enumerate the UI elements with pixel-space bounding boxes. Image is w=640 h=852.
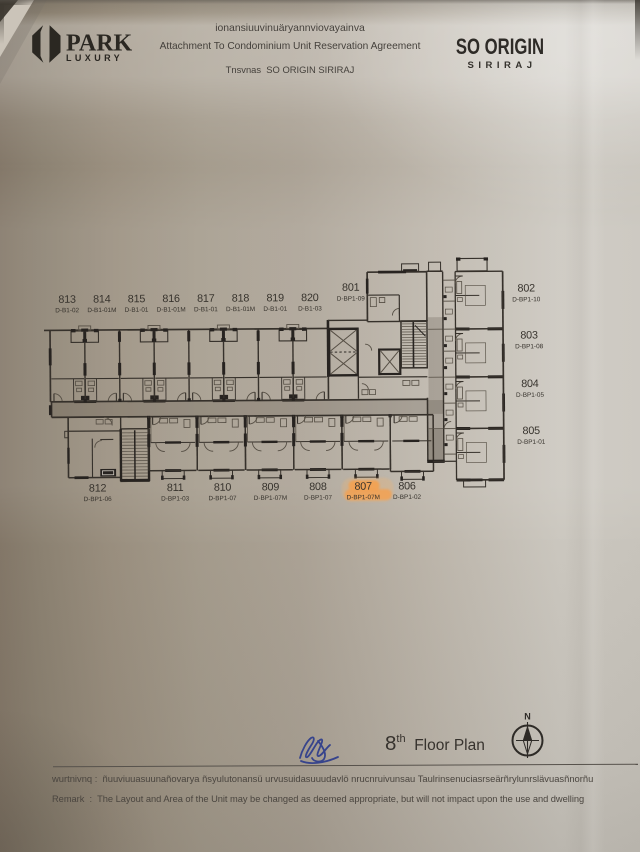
- svg-text:801: 801: [342, 282, 360, 294]
- svg-text:817: 817: [197, 293, 215, 305]
- svg-text:811: 811: [167, 482, 184, 494]
- svg-text:D-BP1-09: D-BP1-09: [337, 295, 366, 302]
- svg-text:D-BP1-06: D-BP1-06: [84, 496, 113, 503]
- svg-text:805: 805: [522, 425, 540, 437]
- svg-text:806: 806: [398, 480, 416, 492]
- svg-text:810: 810: [214, 482, 232, 494]
- svg-text:D-BP1-07M: D-BP1-07M: [254, 495, 287, 502]
- svg-text:D-BP1-07: D-BP1-07: [304, 494, 333, 501]
- svg-text:D-BP1-08: D-BP1-08: [515, 343, 544, 350]
- svg-text:D-BP1-02: D-BP1-02: [393, 494, 422, 501]
- svg-text:807: 807: [354, 481, 372, 493]
- svg-text:D-BP1-10: D-BP1-10: [512, 296, 541, 303]
- svg-text:819: 819: [266, 292, 284, 304]
- svg-text:815: 815: [128, 293, 146, 305]
- svg-text:D-BP1-05: D-BP1-05: [516, 392, 545, 399]
- svg-text:820: 820: [301, 292, 319, 304]
- svg-text:D-BP1-07: D-BP1-07: [209, 495, 238, 502]
- svg-text:D-B1-03: D-B1-03: [298, 305, 322, 312]
- svg-text:818: 818: [232, 292, 250, 304]
- svg-text:803: 803: [520, 329, 538, 341]
- svg-text:816: 816: [162, 293, 180, 305]
- svg-text:D-B1-01M: D-B1-01M: [226, 306, 255, 313]
- svg-text:813: 813: [58, 294, 76, 306]
- svg-text:812: 812: [89, 482, 107, 494]
- svg-text:D-B1-01M: D-B1-01M: [157, 306, 186, 313]
- svg-text:D-B1-01: D-B1-01: [125, 307, 149, 314]
- svg-text:D-BP1-07M: D-BP1-07M: [347, 494, 380, 501]
- svg-text:809: 809: [262, 481, 280, 493]
- svg-text:D-B1-02: D-B1-02: [55, 307, 79, 314]
- svg-text:D-B1-01M: D-B1-01M: [87, 307, 116, 314]
- svg-text:D-B1-01: D-B1-01: [194, 306, 218, 313]
- svg-text:802: 802: [517, 282, 535, 294]
- svg-text:808: 808: [309, 481, 327, 493]
- svg-text:D-BP1-01: D-BP1-01: [517, 439, 546, 446]
- svg-text:D-B1-01: D-B1-01: [263, 306, 287, 313]
- svg-text:814: 814: [93, 293, 111, 305]
- svg-text:804: 804: [521, 378, 539, 390]
- svg-text:N: N: [524, 712, 531, 722]
- svg-text:D-BP1-03: D-BP1-03: [161, 495, 190, 502]
